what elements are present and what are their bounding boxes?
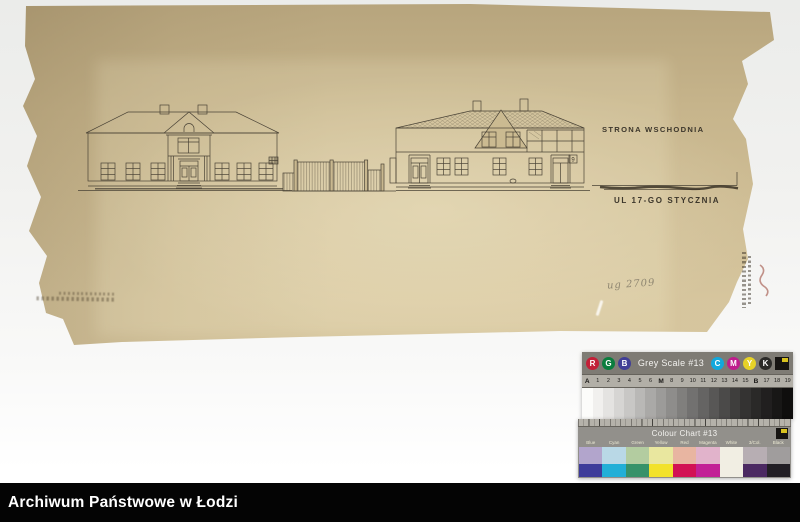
grey-step (772, 388, 783, 419)
grey-scale-tick: 1 (593, 375, 604, 387)
k-circle-icon: K (759, 357, 772, 370)
m-circle-icon: M (727, 357, 740, 370)
colour-column (649, 447, 672, 477)
grey-step (593, 388, 604, 419)
colour-swatch-saturated (767, 464, 790, 477)
grey-scale-tick: 8 (666, 375, 677, 387)
grey-scale-tick: B (751, 375, 762, 387)
colour-column (602, 447, 625, 477)
grey-scale-ruler: A123456M89101112131415B171819 (582, 374, 793, 388)
grey-step (603, 388, 614, 419)
colour-swatch-saturated (673, 464, 696, 477)
side-label: STRONA WSCHODNIA (602, 125, 704, 134)
colour-chart-card: Colour Chart #13 BlueCyanGreenYellowRedM… (578, 419, 791, 478)
grey-step (730, 388, 741, 419)
faint-stamp-bottom-left (36, 288, 114, 301)
grey-step (635, 388, 646, 419)
grey-step (614, 388, 625, 419)
colour-label: 3/Col. (743, 440, 766, 447)
g-circle-icon: G (602, 357, 615, 370)
colour-label: Green (626, 440, 649, 447)
grey-step (624, 388, 635, 419)
colour-swatch-pastel (602, 447, 625, 464)
colour-swatch-pastel (673, 447, 696, 464)
scanned-archive-page: 9 STRONA WSCHODNIA UL 17-GO STYCZNIA ug … (0, 0, 800, 522)
grey-scale-tick: M (656, 375, 667, 387)
house-number-plate-text: 9 (571, 158, 575, 164)
r-circle-icon: R (586, 357, 599, 370)
colour-column (743, 447, 766, 477)
grey-scale-tick: 11 (698, 375, 709, 387)
grey-step (740, 388, 751, 419)
grey-scale-tick: 14 (730, 375, 741, 387)
street-label: UL 17-GO STYCZNIA (614, 196, 720, 205)
colour-chart-header: Colour Chart #13 (578, 427, 791, 440)
kodak-logo-patch-small (776, 428, 788, 439)
colour-swatch-saturated (579, 464, 602, 477)
red-handwritten-mark (760, 265, 768, 296)
grey-scale-tick: 12 (709, 375, 720, 387)
grey-step (582, 388, 593, 419)
colour-swatch-pastel (767, 447, 790, 464)
colour-swatch-pastel (696, 447, 719, 464)
grey-step (761, 388, 772, 419)
grey-scale-title: Grey Scale #13 (634, 358, 708, 368)
grey-step (698, 388, 709, 419)
colour-swatch-pastel (579, 447, 602, 464)
colour-swatch-saturated (626, 464, 649, 477)
colour-swatch-pastel (649, 447, 672, 464)
colour-swatch-saturated (696, 464, 719, 477)
grey-scale-tick: 3 (614, 375, 625, 387)
grey-step (751, 388, 762, 419)
grey-scale-card: RGB Grey Scale #13 CMYK A123456M89101112… (582, 352, 793, 419)
grey-scale-tick: 19 (782, 375, 793, 387)
left-building-elevation (86, 105, 279, 188)
grey-scale-tick: 13 (719, 375, 730, 387)
grey-scale-tick: 9 (677, 375, 688, 387)
colour-column (767, 447, 790, 477)
faint-stamp-right-edge (742, 252, 753, 308)
colour-column (696, 447, 719, 477)
grey-step (782, 388, 793, 419)
grey-step (709, 388, 720, 419)
colour-swatch-saturated (743, 464, 766, 477)
centimetre-ruler (578, 419, 791, 427)
grey-step (687, 388, 698, 419)
colour-swatch-saturated (649, 464, 672, 477)
colour-swatch-saturated (602, 464, 625, 477)
grey-step (656, 388, 667, 419)
colour-label: Magenta (696, 440, 719, 447)
colour-chart-title: Colour Chart #13 (652, 429, 718, 438)
colour-label: Red (673, 440, 696, 447)
kodak-logo-patch (775, 357, 789, 370)
colour-label: Cyan (602, 440, 625, 447)
grey-scale-header: RGB Grey Scale #13 CMYK (582, 352, 793, 374)
grey-step (677, 388, 688, 419)
colour-column (673, 447, 696, 477)
colour-label: Yellow (649, 440, 672, 447)
grey-step (645, 388, 656, 419)
grey-scale-tick: 10 (687, 375, 698, 387)
grey-scale-tick: 2 (603, 375, 614, 387)
grey-scale-tick: 18 (772, 375, 783, 387)
grey-scale-tick: A (582, 375, 593, 387)
colour-label: Blue (579, 440, 602, 447)
y-circle-icon: Y (743, 357, 756, 370)
grey-scale-tick: 15 (740, 375, 751, 387)
right-building-windows (437, 158, 542, 175)
colour-column (579, 447, 602, 477)
grey-scale-tick: 6 (645, 375, 656, 387)
grey-scale-steps (582, 388, 793, 419)
plank-fence (283, 160, 384, 191)
grey-step (666, 388, 677, 419)
grey-scale-tick: 5 (635, 375, 646, 387)
grey-scale-tick: 17 (761, 375, 772, 387)
grey-scale-tick: 4 (624, 375, 635, 387)
colour-chart-swatches (578, 447, 791, 478)
grey-step (719, 388, 730, 419)
c-circle-icon: C (711, 357, 724, 370)
archive-footer-bar: Archiwum Państwowe w Łodzi (0, 483, 800, 522)
colour-chart-labels: BlueCyanGreenYellowRedMagentaWhite3/Col.… (578, 440, 791, 447)
b-circle-icon: B (618, 357, 631, 370)
colour-swatch-pastel (626, 447, 649, 464)
colour-swatch (720, 447, 743, 477)
colour-label: White (720, 440, 743, 447)
colour-column (720, 447, 743, 477)
colour-label: Black (767, 440, 790, 447)
colour-column (626, 447, 649, 477)
right-building-elevation (390, 99, 584, 188)
archive-name: Archiwum Państwowe w Łodzi (8, 494, 238, 512)
colour-swatch-pastel (743, 447, 766, 464)
